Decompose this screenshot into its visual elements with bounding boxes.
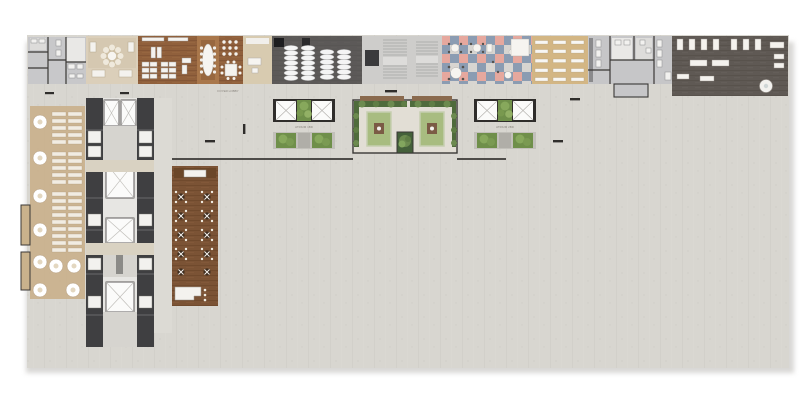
svg-text:ATRIUM 1BD: ATRIUM 1BD	[295, 125, 314, 129]
svg-text:ATRIUM 2BD: ATRIUM 2BD	[496, 125, 515, 129]
svg-text:FOYER LOBBY: FOYER LOBBY	[217, 89, 238, 93]
